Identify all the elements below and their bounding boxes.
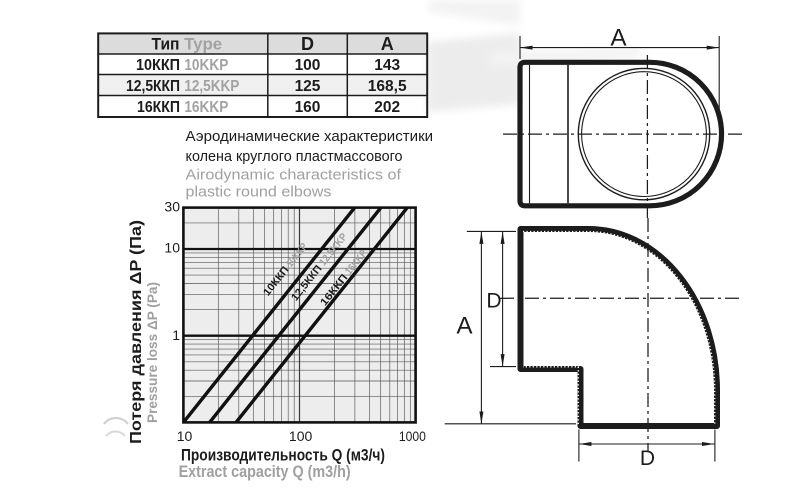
svg-text:колена круглого пластмассового: колена круглого пластмассового	[186, 149, 403, 165]
svg-text:1: 1	[172, 327, 180, 343]
svg-text:A: A	[456, 313, 472, 340]
svg-text:125: 125	[295, 78, 321, 95]
svg-text:D: D	[301, 34, 314, 54]
svg-text:100: 100	[289, 428, 313, 444]
svg-text:30: 30	[164, 199, 180, 215]
svg-text:Airodynamic characteristics of: Airodynamic characteristics of	[186, 168, 403, 184]
svg-text:10ККП 10KKP: 10ККП 10KKP	[136, 57, 228, 74]
svg-text:16ККП 16KKP: 16ККП 16KKP	[137, 99, 228, 116]
svg-text:Тип Type: Тип Type	[152, 35, 223, 53]
svg-text:plastic round elbows: plastic round elbows	[186, 185, 332, 201]
svg-text:Аэродинамические характеристик: Аэродинамические характеристики	[186, 129, 434, 145]
svg-text:D: D	[486, 290, 501, 313]
svg-text:Extract capacity Q (m3/h): Extract capacity Q (m3/h)	[179, 462, 351, 481]
svg-text:Потеря давления ΔP (Па): Потеря давления ΔP (Па)	[128, 220, 145, 444]
svg-text:12,5ККП 12,5KKP: 12,5ККП 12,5KKP	[126, 78, 239, 95]
svg-text:D: D	[640, 447, 655, 470]
svg-text:A: A	[381, 34, 394, 54]
svg-text:100: 100	[295, 57, 321, 74]
svg-text:168,5: 168,5	[368, 78, 407, 95]
svg-text:202: 202	[374, 99, 400, 116]
svg-text:A: A	[610, 25, 626, 52]
svg-text:Pressure loss ΔP (Pa): Pressure loss ΔP (Pa)	[145, 282, 160, 423]
svg-text:1000: 1000	[399, 428, 426, 444]
svg-text:143: 143	[374, 57, 400, 74]
svg-text:10: 10	[164, 240, 180, 256]
svg-text:160: 160	[295, 99, 321, 116]
svg-text:10: 10	[177, 428, 193, 444]
